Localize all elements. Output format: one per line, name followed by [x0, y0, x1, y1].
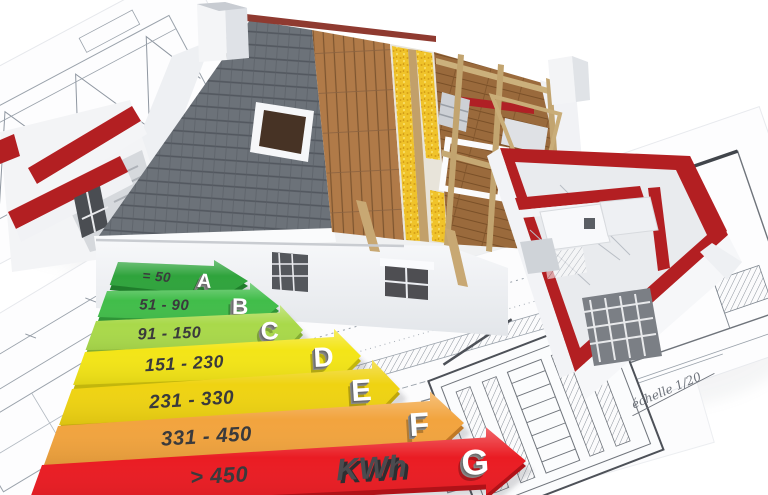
scaffold-ladder — [582, 288, 662, 366]
skylight-window — [250, 102, 314, 162]
range-label: 51 - 90 — [139, 297, 189, 314]
front-window — [380, 258, 434, 300]
range-label: > 450 — [190, 461, 249, 489]
class-letter-G: G — [460, 442, 490, 483]
class-letter-F: F — [408, 405, 430, 443]
oven — [584, 218, 595, 229]
range-label: = 50 — [142, 268, 172, 285]
render-canvas: échelle 1/20 — [0, 0, 768, 495]
class-letter-E: E — [350, 373, 372, 408]
front-door-opening — [272, 252, 308, 292]
scene-house-energy-rating: échelle 1/20 — [0, 0, 768, 495]
range-label: 151 - 230 — [144, 351, 224, 375]
class-letter-D: D — [313, 341, 335, 373]
unit-label-kwh: KWh — [335, 448, 407, 487]
class-letter-A: A — [196, 270, 212, 293]
range-label: 91 - 150 — [137, 324, 201, 344]
chimney-right — [548, 56, 590, 105]
chimney-left — [197, 2, 249, 62]
